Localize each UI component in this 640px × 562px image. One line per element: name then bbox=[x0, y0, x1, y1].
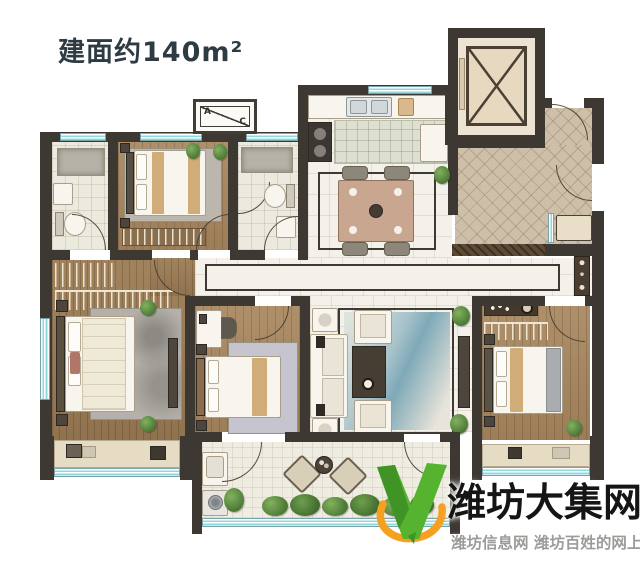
wall bbox=[180, 436, 197, 480]
watermark-tagline: 潍坊信息网 潍坊百姓的网上大集 bbox=[451, 531, 640, 553]
wall bbox=[228, 142, 238, 250]
bed-blanket bbox=[188, 152, 200, 214]
dining-chair bbox=[384, 166, 410, 180]
wall bbox=[230, 250, 265, 260]
bay-window bbox=[54, 468, 180, 477]
wall bbox=[192, 296, 255, 306]
plant bbox=[434, 166, 450, 184]
plant bbox=[213, 144, 227, 160]
table-centerpiece bbox=[369, 204, 383, 218]
sink bbox=[53, 183, 73, 205]
balcony-plant-pot bbox=[224, 488, 244, 512]
bay-decor-box bbox=[150, 446, 166, 460]
washer-drum bbox=[208, 495, 223, 510]
side-table bbox=[312, 308, 338, 332]
wall bbox=[592, 98, 604, 164]
balcony-bush bbox=[322, 497, 348, 516]
corridor-decor-shelf bbox=[574, 256, 590, 296]
toilet-bowl bbox=[264, 184, 286, 208]
wall bbox=[472, 296, 545, 306]
entry-threshold bbox=[452, 244, 545, 256]
plant bbox=[140, 300, 156, 316]
sofa-cushion bbox=[322, 378, 344, 416]
toilet-tank bbox=[286, 184, 295, 208]
nightstand bbox=[196, 344, 207, 355]
plate bbox=[394, 188, 402, 196]
wall bbox=[40, 250, 70, 260]
pillow bbox=[496, 381, 507, 407]
balcony-table bbox=[315, 456, 333, 474]
elevator-rail bbox=[459, 58, 465, 110]
ac-letter-a: A bbox=[204, 107, 211, 117]
fridge bbox=[420, 124, 448, 162]
bed-blanket bbox=[152, 152, 164, 214]
wall bbox=[445, 85, 457, 145]
pillow bbox=[496, 351, 507, 377]
coffee-table bbox=[352, 346, 386, 398]
kitchen-sink-basin bbox=[371, 100, 388, 114]
wall bbox=[190, 250, 198, 260]
bay-decor-box bbox=[508, 447, 522, 459]
window bbox=[246, 133, 298, 141]
plant bbox=[186, 143, 200, 159]
wall bbox=[185, 296, 195, 436]
pillow bbox=[68, 322, 81, 352]
ac-letter-c: C bbox=[239, 117, 246, 127]
window bbox=[60, 133, 106, 141]
desk-chair bbox=[221, 317, 237, 339]
headboard bbox=[484, 348, 493, 412]
nightstand bbox=[120, 218, 130, 228]
nightstand bbox=[120, 143, 130, 153]
balcony-bush bbox=[262, 496, 288, 516]
nightstand bbox=[56, 300, 68, 312]
corridor-runner-rug bbox=[205, 264, 560, 291]
wall bbox=[110, 250, 152, 260]
window bbox=[140, 133, 202, 141]
master-closet-rail bbox=[55, 263, 113, 287]
tv-console bbox=[168, 338, 178, 408]
plant bbox=[566, 420, 582, 436]
headboard bbox=[126, 152, 134, 214]
wall bbox=[285, 432, 404, 442]
toilet-tank bbox=[55, 212, 64, 236]
wall bbox=[535, 38, 545, 145]
ac-unit-platform: A C bbox=[193, 99, 257, 134]
dining-chair bbox=[342, 242, 368, 256]
pillow bbox=[208, 388, 219, 412]
chaise-cushion bbox=[360, 314, 386, 338]
plate bbox=[349, 226, 357, 234]
nightstand bbox=[56, 414, 68, 426]
right-bay-seat bbox=[482, 444, 590, 467]
pillow bbox=[136, 154, 147, 180]
watermark-brand: 潍坊大集网 bbox=[447, 472, 640, 528]
wall bbox=[298, 85, 308, 260]
dining-chair bbox=[342, 166, 368, 180]
plant bbox=[450, 414, 468, 434]
wall bbox=[592, 211, 604, 480]
headboard bbox=[56, 316, 65, 412]
bed-blanket bbox=[510, 348, 523, 412]
nightstand bbox=[484, 416, 495, 427]
plate bbox=[349, 188, 357, 196]
bed-duvet bbox=[82, 318, 126, 410]
shoe-cabinet bbox=[556, 215, 592, 241]
pillow bbox=[208, 360, 219, 384]
wall bbox=[40, 436, 54, 480]
throw-pillow bbox=[316, 336, 325, 348]
burner bbox=[314, 128, 326, 140]
balcony-bush bbox=[290, 494, 320, 516]
tv-console bbox=[458, 336, 470, 408]
cutting-board bbox=[398, 98, 414, 116]
wall bbox=[545, 98, 552, 108]
coffee-table-decor bbox=[362, 378, 374, 390]
window bbox=[548, 213, 554, 243]
shower-mat bbox=[241, 147, 293, 173]
accent-pillow bbox=[70, 352, 80, 374]
wall bbox=[448, 135, 545, 148]
shower-mat bbox=[57, 148, 105, 176]
elevator-cab bbox=[466, 46, 527, 126]
kitchen-sink-basin bbox=[350, 100, 367, 114]
daji-logo-icon bbox=[368, 460, 454, 544]
bay-pillow bbox=[66, 444, 82, 458]
plate bbox=[394, 226, 402, 234]
wall bbox=[472, 296, 482, 444]
ac-unit-label: A C bbox=[200, 106, 250, 127]
headboard bbox=[196, 358, 205, 416]
bed-blanket bbox=[252, 358, 267, 416]
burner bbox=[314, 145, 326, 157]
plant bbox=[140, 416, 156, 432]
elevator-x-icon bbox=[469, 49, 524, 123]
window bbox=[368, 86, 432, 94]
wall bbox=[40, 132, 52, 480]
bay-pillow bbox=[82, 446, 96, 458]
bay-pillow bbox=[552, 447, 570, 459]
wall bbox=[448, 28, 545, 38]
bed-throw bbox=[546, 348, 561, 412]
floor-plan: 建面约140m² bbox=[0, 0, 640, 562]
window bbox=[40, 318, 50, 400]
plant bbox=[452, 306, 470, 326]
wardrobe bbox=[122, 228, 206, 246]
wall bbox=[300, 296, 310, 442]
throw-pillow bbox=[316, 404, 325, 416]
wall bbox=[108, 142, 118, 250]
sofa-cushion bbox=[322, 338, 344, 376]
desk-monitor bbox=[199, 314, 207, 324]
pillow bbox=[136, 184, 147, 210]
dining-chair bbox=[384, 242, 410, 256]
chaise-cushion bbox=[360, 404, 386, 428]
area-title: 建面约140m² bbox=[58, 30, 243, 69]
nightstand bbox=[484, 334, 495, 345]
wall bbox=[448, 145, 458, 215]
nightstand bbox=[196, 420, 207, 431]
